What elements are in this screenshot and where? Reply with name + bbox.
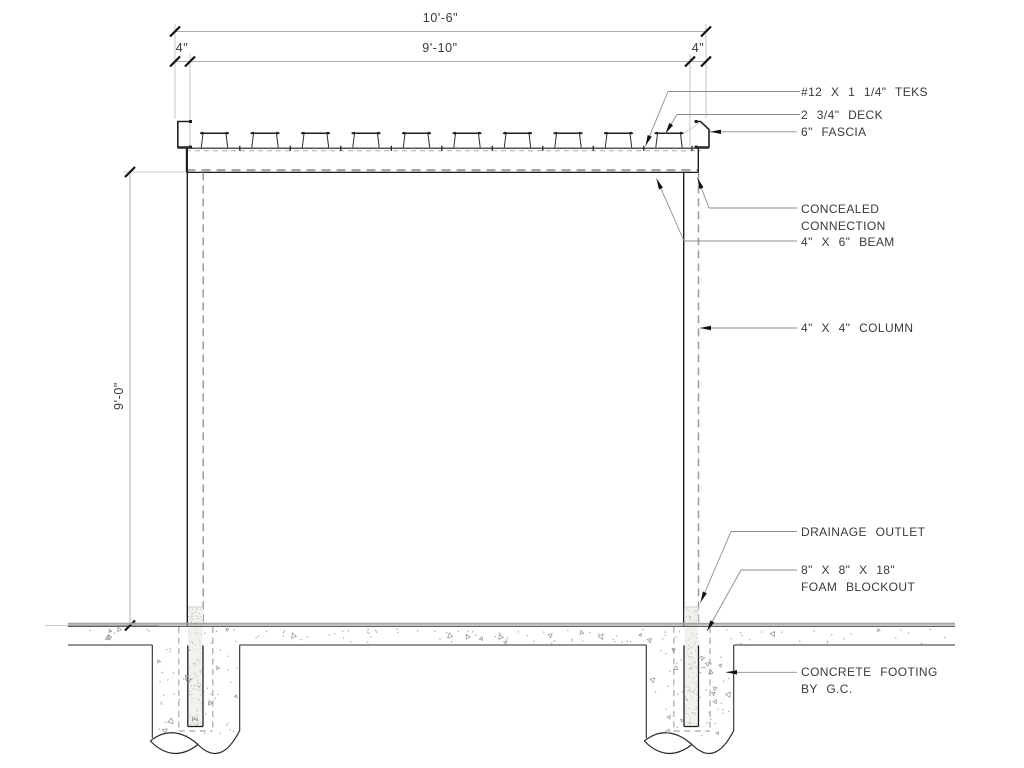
concrete-footings: [150, 627, 734, 753]
dim-left-offset: 4": [169, 41, 195, 55]
dim-right-offset: 4": [685, 41, 711, 55]
label-teks-screws: #12 X 1 1/4" TEKS: [801, 84, 928, 101]
label-column: 4" X 4" COLUMN: [801, 320, 913, 337]
edge-beam: [187, 148, 699, 172]
label-concealed-line2: CONNECTION: [801, 218, 886, 235]
dim-inner-width: 9'-10": [196, 41, 684, 55]
dim-overall-width: 10'-6": [175, 11, 706, 25]
label-drainage-outlet: DRAINAGE OUTLET: [801, 524, 925, 541]
label-deck: 2 3/4" DECK: [801, 107, 883, 124]
label-foam-line2: FOAM BLOCKOUT: [801, 579, 915, 596]
label-concrete-footing: CONCRETE FOOTING BY G.C.: [801, 664, 938, 698]
label-concealed-line1: CONCEALED: [801, 201, 886, 218]
label-beam: 4" X 6" BEAM: [801, 234, 895, 251]
label-footing-line2: BY G.C.: [801, 681, 938, 698]
label-foam-line1: 8" X 8" X 18": [801, 562, 915, 579]
dim-column-height: 9'-0": [112, 366, 126, 426]
label-foam-blockout: 8" X 8" X 18" FOAM BLOCKOUT: [801, 562, 915, 596]
drawing-canvas: 10'-6" 9'-10" 4" 4" 9'-0" #12 X 1 1/4" T…: [0, 0, 1024, 768]
roof-deck: [178, 120, 710, 151]
columns: [187, 148, 698, 626]
dimension-lines: [45, 24, 711, 631]
callout-leaders: [646, 92, 801, 675]
label-fascia: 6" FASCIA: [801, 124, 867, 141]
label-footing-line1: CONCRETE FOOTING: [801, 664, 938, 681]
label-concealed-connection: CONCEALED CONNECTION: [801, 201, 886, 235]
